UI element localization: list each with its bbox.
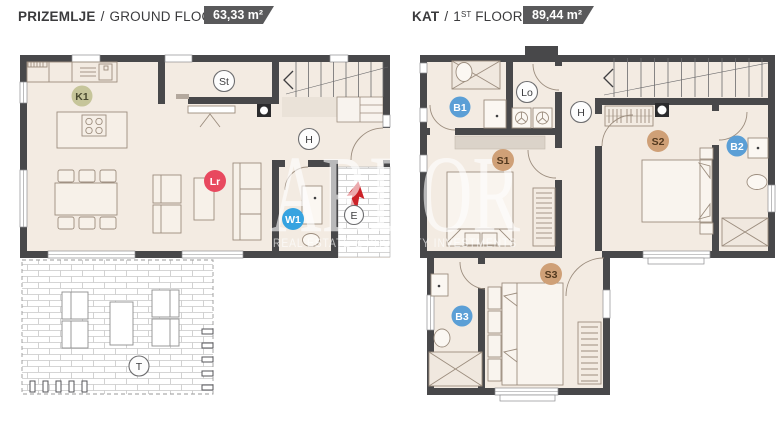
armchair xyxy=(153,175,181,203)
svg-text:Lr: Lr xyxy=(210,176,221,188)
ground-floor-area-badge: 63,33 m² xyxy=(204,6,274,24)
kitchen-island xyxy=(57,112,127,148)
room-label-s2: S2 xyxy=(647,130,669,152)
bed xyxy=(642,160,712,222)
terrace-lounger xyxy=(152,319,179,346)
title-separator: / xyxy=(444,9,448,24)
svg-text:B1: B1 xyxy=(453,102,467,114)
first-floor-subtitle: FLOOR xyxy=(475,9,523,24)
dining-chair xyxy=(100,170,116,182)
balcony-sill xyxy=(648,258,704,264)
dining-chair xyxy=(58,170,74,182)
floorplan-drawing: ARDOR REAL ESTATE & PROPERTY INVESTMENTS… xyxy=(0,0,780,421)
nightstand xyxy=(700,148,713,159)
room-label-h-ground: H xyxy=(299,129,320,150)
dining-chair xyxy=(79,170,95,182)
svg-text:B3: B3 xyxy=(455,311,469,323)
terrace-table xyxy=(110,302,133,345)
svg-text:W1: W1 xyxy=(285,214,301,226)
washbasin xyxy=(748,138,768,158)
svg-text:S3: S3 xyxy=(545,269,558,281)
ground-floor-area-value: 63,33 m² xyxy=(213,8,263,22)
svg-text:S1: S1 xyxy=(497,155,510,167)
room-label-b2: B2 xyxy=(727,136,748,157)
nightstand xyxy=(488,311,501,333)
nightstand xyxy=(488,287,501,309)
room-label-lr: Lr xyxy=(204,170,226,192)
svg-text:K1: K1 xyxy=(75,91,89,103)
svg-text:B2: B2 xyxy=(730,141,744,153)
understair-storage xyxy=(282,97,337,117)
terrace-lounger xyxy=(62,292,88,319)
shower xyxy=(722,218,768,246)
nightstand xyxy=(700,223,713,234)
room-label-h-first: H xyxy=(571,102,592,123)
first-floor-header: KAT/1ST FLOOR xyxy=(412,9,523,24)
watermark: ARDOR REAL ESTATE & PROPERTY INVESTMENTS xyxy=(270,133,520,255)
first-floor-number: 1 xyxy=(453,9,461,24)
dining-chair xyxy=(100,217,116,229)
washing-machine xyxy=(512,108,531,128)
toilet xyxy=(434,329,450,347)
room-label-b3: B3 xyxy=(452,306,473,327)
room-label-w1: W1 xyxy=(282,208,304,230)
floorplan-page: ARDOR REAL ESTATE & PROPERTY INVESTMENTS… xyxy=(0,0,780,421)
room-label-b1: B1 xyxy=(450,97,471,118)
armchair xyxy=(153,205,181,233)
terrace-lounger xyxy=(152,290,179,317)
dining-chair xyxy=(58,217,74,229)
svg-text:St: St xyxy=(219,76,229,88)
washbasin xyxy=(431,274,448,296)
first-floor-area-value: 89,44 m² xyxy=(532,8,582,22)
svg-text:E: E xyxy=(350,210,357,222)
svg-text:H: H xyxy=(305,134,313,146)
understair-cupboard xyxy=(337,97,383,122)
dining-chair xyxy=(79,217,95,229)
washbasin xyxy=(484,100,506,128)
room-label-t: T xyxy=(129,356,149,376)
toilet xyxy=(747,175,767,190)
ground-floor-title: PRIZEMLJE xyxy=(18,9,96,24)
svg-text:T: T xyxy=(136,361,143,373)
first-floor-title: KAT xyxy=(412,9,439,24)
sofa xyxy=(233,163,261,240)
dining-table xyxy=(55,183,117,215)
terrace-lounger xyxy=(62,321,88,348)
terrace xyxy=(22,260,213,394)
svg-text:S2: S2 xyxy=(652,136,665,148)
dining-set xyxy=(55,170,117,229)
svg-text:Lo: Lo xyxy=(521,87,533,99)
room-label-st: St xyxy=(214,71,235,92)
room-label-s3: S3 xyxy=(540,263,562,285)
room-label-k1: K1 xyxy=(72,86,93,107)
room-label-lo: Lo xyxy=(517,82,538,103)
watermark-subtitle: REAL ESTATE & PROPERTY INVESTMENTS xyxy=(273,238,517,250)
shower xyxy=(429,352,482,386)
window-sill xyxy=(500,395,555,401)
ground-floor-header: PRIZEMLJE/GROUND FLOOR xyxy=(18,9,222,24)
first-floor-area-badge: 89,44 m² xyxy=(523,6,594,24)
svg-text:H: H xyxy=(577,107,585,119)
room-label-s1: S1 xyxy=(492,149,514,171)
watermark-title: ARDOR xyxy=(270,133,520,255)
room-label-e: E xyxy=(345,206,364,225)
washing-machine xyxy=(533,108,552,128)
toilet xyxy=(456,63,472,82)
nightstand xyxy=(488,359,501,381)
first-floor-ordinal: ST xyxy=(461,10,471,19)
title-separator: / xyxy=(101,9,105,24)
sliding-door-mark xyxy=(176,94,189,99)
nightstand xyxy=(488,335,501,357)
